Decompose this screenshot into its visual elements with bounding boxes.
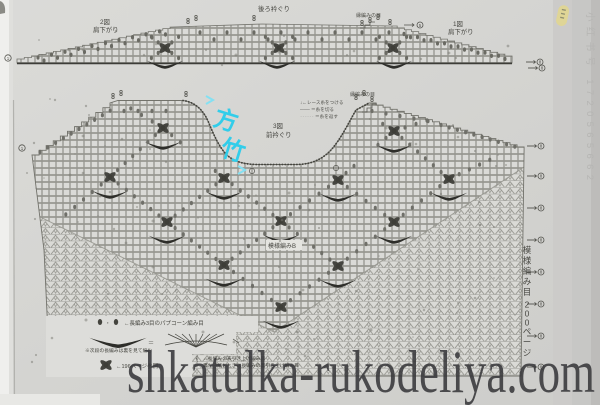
svg-text:shkatulka-rukodeliya.com: shkatulka-rukodeliya.com [127,339,595,405]
